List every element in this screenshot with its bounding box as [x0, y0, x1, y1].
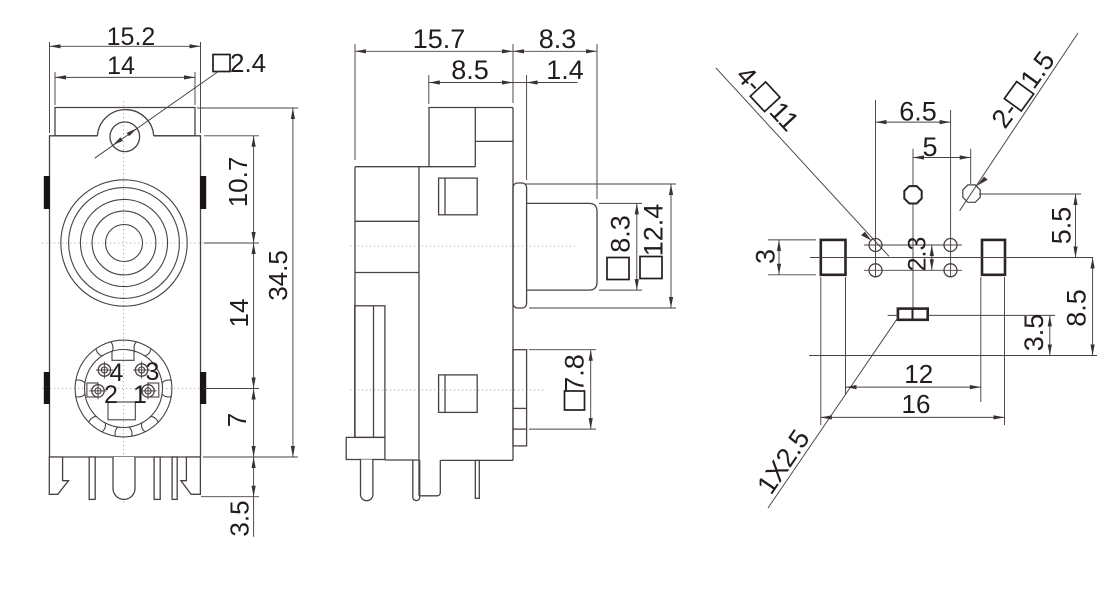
svg-text:12: 12	[904, 359, 933, 389]
svg-text:7: 7	[222, 413, 252, 427]
svg-text:8.5: 8.5	[451, 55, 489, 85]
svg-text:34.5: 34.5	[263, 250, 293, 301]
svg-text:1.4: 1.4	[546, 55, 584, 85]
svg-text:3: 3	[751, 249, 781, 264]
svg-text:8.3: 8.3	[539, 24, 577, 54]
svg-text:14: 14	[224, 299, 254, 328]
svg-text:2: 2	[104, 381, 118, 409]
svg-text:7.8: 7.8	[560, 354, 590, 392]
svg-text:14: 14	[107, 52, 135, 80]
svg-text:10.7: 10.7	[223, 157, 253, 208]
svg-text:8.5: 8.5	[1062, 289, 1092, 327]
svg-text:5.5: 5.5	[1047, 207, 1077, 245]
svg-text:3: 3	[146, 358, 160, 386]
svg-text:2.4: 2.4	[230, 48, 266, 78]
svg-text:15.7: 15.7	[413, 24, 466, 54]
svg-text:1: 1	[133, 381, 147, 409]
svg-text:12.4: 12.4	[639, 204, 669, 257]
svg-text:8.3: 8.3	[606, 215, 636, 253]
svg-text:15.2: 15.2	[107, 23, 156, 51]
svg-text:3.5: 3.5	[225, 500, 255, 536]
svg-text:3.5: 3.5	[1019, 314, 1049, 352]
svg-text:16: 16	[902, 389, 931, 419]
svg-text:2.3: 2.3	[904, 237, 932, 272]
